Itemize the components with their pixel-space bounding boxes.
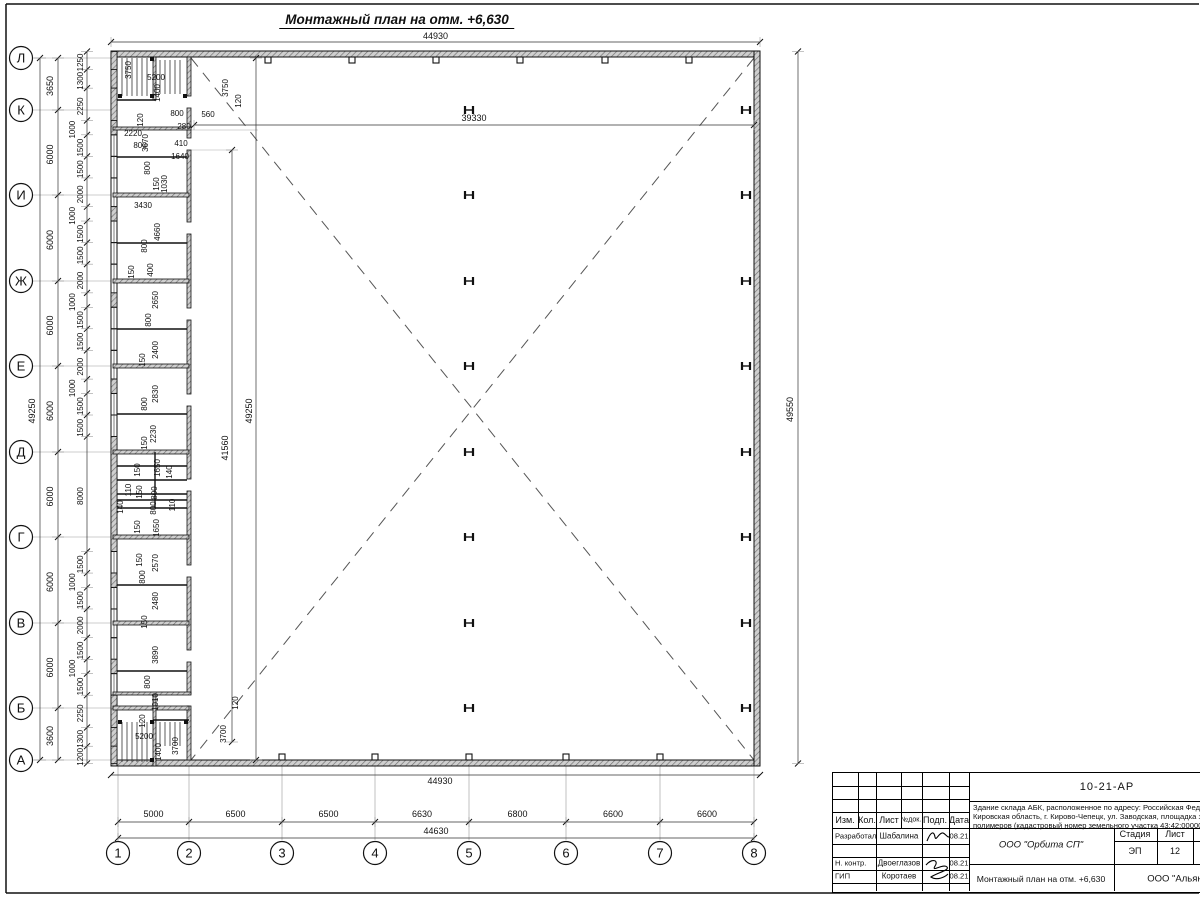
wall-pier: [111, 69, 117, 88]
dimension-label: 120: [138, 714, 147, 728]
signature: [925, 829, 951, 845]
axis-label: 8: [750, 846, 757, 861]
axis-label: Ж: [15, 274, 27, 289]
axis-label: 7: [656, 846, 663, 861]
dimension-label: 6000: [45, 401, 55, 421]
dimension-label: 3750: [124, 61, 133, 79]
dimension-label: 1500: [76, 555, 85, 573]
dimension-label: 1500: [76, 246, 85, 264]
dimension-label: 6630: [412, 809, 432, 819]
tb-line: [1114, 841, 1200, 842]
drawing-title: Монтажный план на отм. +6,630: [977, 874, 1106, 884]
sign-name: Двоеглазов: [878, 859, 921, 868]
dimension-label: 1500: [76, 160, 85, 178]
dimension-label: 6800: [507, 809, 527, 819]
dimension-label: 1010: [151, 693, 160, 711]
sign-role: Н. контр.: [835, 859, 866, 868]
dimension-label: 44930: [427, 776, 452, 786]
wall-post: [563, 754, 569, 760]
dimension-label: 6500: [225, 809, 245, 819]
axis-label: 3: [278, 846, 285, 861]
dimension-label: 150: [135, 553, 144, 567]
sign-role: ГИП: [835, 872, 850, 881]
dimension-label: 1640: [171, 152, 189, 161]
dimension-label: 2000: [76, 271, 85, 289]
stage-label: Стадия: [1120, 829, 1151, 839]
dimension-label: 1250: [76, 53, 85, 71]
axis-label: 4: [371, 846, 378, 861]
dimension-label: 1500: [76, 138, 85, 156]
sign-name: Коротаев: [882, 872, 917, 881]
address-line: Кировская область, г. Кирово-Чепецк, ул.…: [973, 812, 1200, 821]
dimension-label: 1500: [76, 332, 85, 350]
dimension-label: 1400: [153, 84, 162, 102]
dimension-label: 8000: [76, 487, 85, 505]
stage-value: ЭП: [1129, 846, 1142, 856]
partition-wall: [113, 279, 189, 283]
dimension-label: 1500: [76, 591, 85, 609]
partition-wall: [113, 535, 189, 539]
dimension-label: 410: [174, 139, 188, 148]
dimension-label: 1200: [76, 747, 85, 765]
dimension-label: 3890: [151, 646, 160, 664]
axis-label: 2: [185, 846, 192, 861]
tb-line: [833, 812, 969, 813]
dimension-label: 1000: [68, 293, 77, 311]
stair-post: [184, 720, 188, 724]
dimension-label: 3600: [45, 726, 55, 746]
stair-post: [150, 57, 154, 61]
wall-post: [686, 57, 692, 63]
tb-line: [969, 864, 1200, 865]
dimension-label: 44930: [423, 31, 448, 41]
dimension-label: 150: [140, 436, 149, 450]
dimension-label: 2000: [76, 357, 85, 375]
exterior-wall-right: [754, 51, 760, 766]
title-block: 10-21-АР Здание склада АБК, расположенно…: [832, 772, 1200, 893]
dimension-label: 4660: [153, 223, 162, 241]
dimension-label: 150: [138, 353, 147, 367]
dimension-label: 3700: [171, 737, 180, 755]
dimension-label: 150: [127, 265, 136, 279]
dimension-label: 2250: [76, 97, 85, 115]
dimension-label: 49550: [785, 397, 795, 422]
axis-label: 1: [114, 846, 121, 861]
axis-label: К: [17, 103, 25, 118]
tb-col-ndok: №док.: [901, 817, 922, 824]
stair-post: [183, 94, 187, 98]
dimension-label: 5000: [143, 809, 163, 819]
dimension-label: 49250: [244, 398, 254, 423]
tb-line: [969, 801, 1200, 802]
corridor-wall: [187, 706, 191, 760]
dimension-label: 3670: [141, 134, 150, 152]
wall-post: [279, 754, 285, 760]
wall-pier: [111, 293, 117, 307]
dimension-label: 6000: [45, 230, 55, 250]
dimension-label: 1500: [76, 418, 85, 436]
dimension-label: 5200: [135, 732, 153, 741]
dimension-label: 1000: [68, 206, 77, 224]
corridor-wall: [187, 234, 191, 308]
dimension-label: 6600: [603, 809, 623, 819]
tb-line: [833, 883, 969, 884]
dimension-label: 1500: [76, 224, 85, 242]
dimension-label: 800: [144, 313, 153, 327]
dimension-label: 1500: [76, 677, 85, 695]
dimension-label: 2230: [149, 425, 158, 443]
dimension-label: 1000: [68, 120, 77, 138]
dimension-label: 2650: [151, 291, 160, 309]
axis-label: А: [17, 753, 26, 768]
corridor-wall: [187, 662, 191, 694]
wall-pier: [111, 659, 117, 673]
dimension-label: 1000: [68, 659, 77, 677]
tb-col-podp: Подп.: [923, 815, 947, 825]
wall-post: [349, 57, 355, 63]
dimension-label: 6600: [697, 809, 717, 819]
dimension-label: 1650: [153, 459, 162, 477]
dimension-label: 120: [136, 113, 145, 127]
dimension-label: 150: [135, 485, 144, 499]
dimension-label: 800: [140, 239, 149, 253]
dimension-label: 110: [124, 483, 133, 496]
address-line: Здание склада АБК, расположенное по адре…: [973, 803, 1200, 812]
floor-plan-canvas: 1250130022501000150015002000100015001500…: [0, 0, 1200, 900]
dimension-label: 2250: [76, 704, 85, 722]
sheet-label: Лист: [1165, 829, 1185, 839]
dimension-label: 280: [177, 122, 191, 131]
tb-line: [1193, 828, 1194, 864]
dimension-label: 140: [165, 465, 174, 479]
dimension-label: 5200: [147, 73, 165, 82]
org-name: ООО "Орбита СП": [999, 840, 1083, 851]
sign-date: 08.21: [949, 872, 968, 881]
wall-post: [265, 57, 271, 63]
stair-post: [150, 720, 154, 724]
tb-col-izm: Изм.: [835, 815, 854, 825]
dimension-label: 150: [140, 615, 149, 629]
wall-post: [602, 57, 608, 63]
wall-pier: [111, 728, 117, 747]
dimension-label: 1030: [160, 175, 169, 193]
axis-label: Г: [17, 530, 24, 545]
dimension-label: 3750: [221, 79, 230, 97]
sign-date: 08.21: [949, 859, 968, 868]
wall-pier: [111, 746, 117, 763]
dimension-label: 2830: [151, 385, 160, 403]
corridor-wall: [187, 406, 191, 479]
dimension-label: 1400: [154, 743, 163, 761]
dimension-label: 800: [140, 397, 149, 411]
tb-line: [833, 799, 969, 800]
dimension-label: 2400: [151, 341, 160, 359]
tb-col-data: Дата: [949, 815, 969, 825]
dimension-label: 800: [143, 161, 152, 175]
dimension-label: 2480: [151, 592, 160, 610]
dimension-label: 800: [170, 109, 184, 118]
axis-label: Б: [17, 701, 26, 716]
dimension-label: 49250: [27, 398, 37, 423]
exterior-wall-bottom: [111, 760, 760, 766]
wall-pier: [111, 52, 117, 70]
axis-label: И: [16, 188, 25, 203]
dimension-label: 800: [150, 486, 159, 500]
dimension-label: 1650: [152, 519, 161, 537]
axis-label: Л: [17, 51, 26, 66]
sign-role: Разработал: [835, 832, 876, 841]
partition-wall: [113, 450, 189, 454]
wall-post: [433, 57, 439, 63]
wall-post: [657, 754, 663, 760]
dimension-label: 6000: [45, 315, 55, 335]
dimension-label: 800: [138, 570, 147, 584]
doc-number: 10-21-АР: [1080, 781, 1134, 793]
tb-col-kol: Кол.: [858, 815, 876, 825]
wall-pier: [111, 379, 117, 393]
signature: [923, 857, 951, 883]
axis-label: Д: [17, 445, 26, 460]
partition-wall: [113, 364, 189, 368]
exterior-wall-top: [111, 51, 760, 57]
project-address: Здание склада АБК, расположенное по адре…: [973, 803, 1200, 830]
dimension-label: 1500: [76, 397, 85, 415]
tb-line: [833, 786, 969, 787]
drawing-sheet: { "sheet": { "title": "Монтажный план на…: [0, 0, 1200, 900]
dimension-label: 1300: [76, 729, 85, 747]
tb-col-list: Лист: [879, 815, 899, 825]
corridor-wall: [187, 57, 191, 96]
axis-label: Е: [17, 359, 26, 374]
dimension-label: 2000: [76, 185, 85, 203]
corridor-wall: [187, 577, 191, 650]
tb-line: [1114, 828, 1115, 891]
dimension-label: 1500: [76, 311, 85, 329]
dimension-label: 3650: [45, 76, 55, 96]
dimension-label: 6000: [45, 572, 55, 592]
corridor-wall: [187, 491, 191, 565]
wall-pier: [111, 207, 117, 221]
dimension-label: 1500: [76, 641, 85, 659]
dimension-label: 140: [116, 500, 125, 514]
wall-post: [372, 754, 378, 760]
dimension-label: 400: [146, 263, 155, 277]
sheet-number: 12: [1170, 846, 1180, 856]
dimension-label: 6000: [45, 144, 55, 164]
wall-post: [517, 57, 523, 63]
tb-line: [1157, 828, 1158, 864]
dimension-label: 44630: [423, 826, 448, 836]
dimension-label: 6500: [318, 809, 338, 819]
partition-wall: [113, 621, 189, 625]
partition-wall: [113, 193, 189, 197]
dimension-label: 800: [143, 675, 152, 689]
dimension-label: 2000: [76, 616, 85, 634]
sign-date: 08.21: [949, 832, 968, 841]
dimension-label: 800: [149, 501, 158, 515]
dimension-label: 6000: [45, 486, 55, 506]
dimension-label: 6000: [45, 657, 55, 677]
sign-name: Шабалина: [880, 832, 919, 841]
axis-label: 5: [465, 846, 472, 861]
dimension-label: 560: [201, 110, 215, 119]
dimension-label: 120: [231, 696, 240, 710]
tb-line: [969, 773, 970, 891]
corridor-wall: [187, 320, 191, 394]
dimension-label: 39330: [461, 113, 486, 123]
dimension-label: 120: [234, 94, 243, 108]
dimension-label: 1000: [68, 573, 77, 591]
dimension-label: 3430: [134, 201, 152, 210]
axis-label: 6: [562, 846, 569, 861]
wall-pier: [111, 573, 117, 587]
axis-label: В: [17, 616, 26, 631]
dimension-label: 2570: [151, 554, 160, 572]
dimension-label: 41560: [220, 435, 230, 460]
stair-post: [118, 720, 122, 724]
dimension-label: 150: [133, 463, 142, 477]
wall-post: [466, 754, 472, 760]
dimension-label: 3700: [219, 725, 228, 743]
dimension-label: 1300: [76, 71, 85, 89]
wall-pier: [111, 88, 117, 120]
company-name: ООО "Альянс": [1147, 874, 1200, 885]
stair-post: [118, 94, 122, 98]
dimension-label: 150: [133, 520, 142, 534]
dimension-label: 2220: [124, 129, 142, 138]
dimension-label: 1000: [68, 379, 77, 397]
dimension-label: 110: [168, 498, 177, 511]
wall-pier: [111, 695, 117, 727]
